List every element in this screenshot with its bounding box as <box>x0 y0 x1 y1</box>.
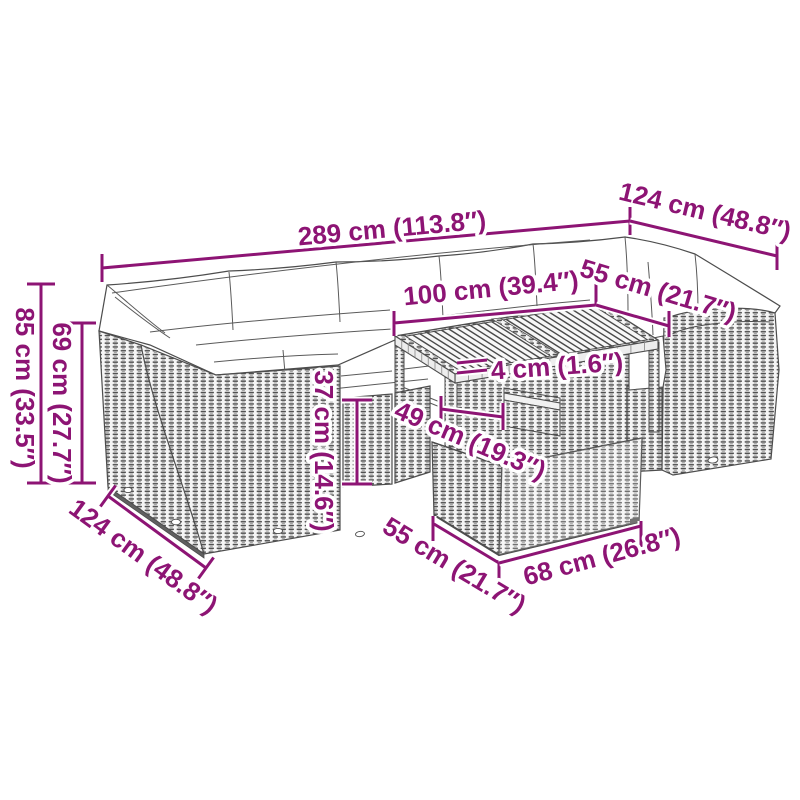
svg-text:85 cm (33.5″): 85 cm (33.5″) <box>10 307 40 468</box>
svg-text:37 cm (14.6″): 37 cm (14.6″) <box>309 370 339 531</box>
svg-text:69 cm (27.7″): 69 cm (27.7″) <box>47 322 77 483</box>
